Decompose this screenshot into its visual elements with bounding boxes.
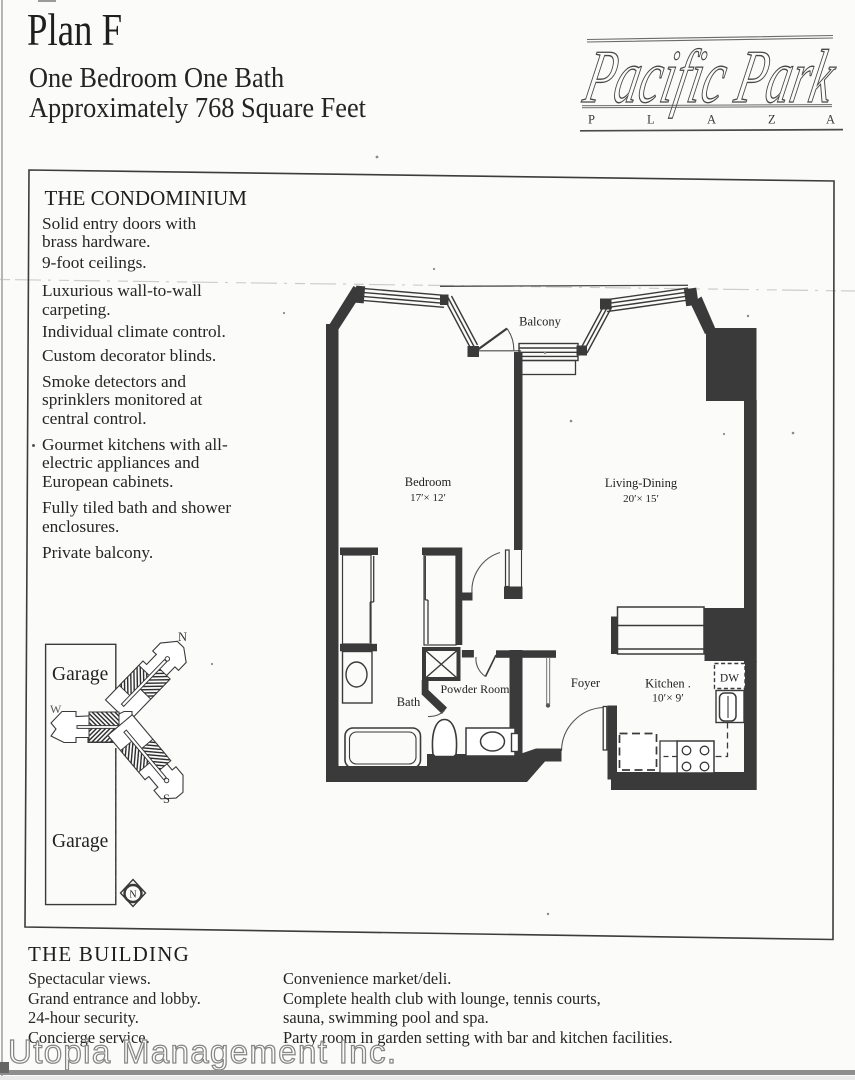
svg-text:N: N bbox=[178, 630, 187, 644]
svg-text:Balcony: Balcony bbox=[519, 315, 561, 329]
svg-text:Garage: Garage bbox=[52, 664, 108, 685]
svg-text:Foyer: Foyer bbox=[571, 676, 601, 690]
svg-text:Kitchen .: Kitchen . bbox=[645, 677, 691, 691]
svg-text:Utopia Management Inc.: Utopia Management Inc. bbox=[8, 1033, 396, 1070]
svg-text:20′× 15′: 20′× 15′ bbox=[623, 493, 659, 505]
svg-text:N: N bbox=[129, 890, 136, 901]
svg-text:Garage: Garage bbox=[52, 831, 108, 852]
svg-text:Bedroom: Bedroom bbox=[405, 475, 452, 489]
svg-text:17′× 12′: 17′× 12′ bbox=[410, 492, 446, 504]
svg-text:10′× 9′: 10′× 9′ bbox=[652, 693, 684, 705]
svg-text:Powder Room: Powder Room bbox=[441, 682, 511, 696]
svg-text:Living-Dining: Living-Dining bbox=[605, 476, 678, 490]
svg-text:W: W bbox=[50, 702, 62, 716]
svg-text:DW: DW bbox=[720, 673, 739, 685]
svg-text:Bath: Bath bbox=[397, 695, 421, 709]
svg-text:S: S bbox=[163, 792, 170, 806]
